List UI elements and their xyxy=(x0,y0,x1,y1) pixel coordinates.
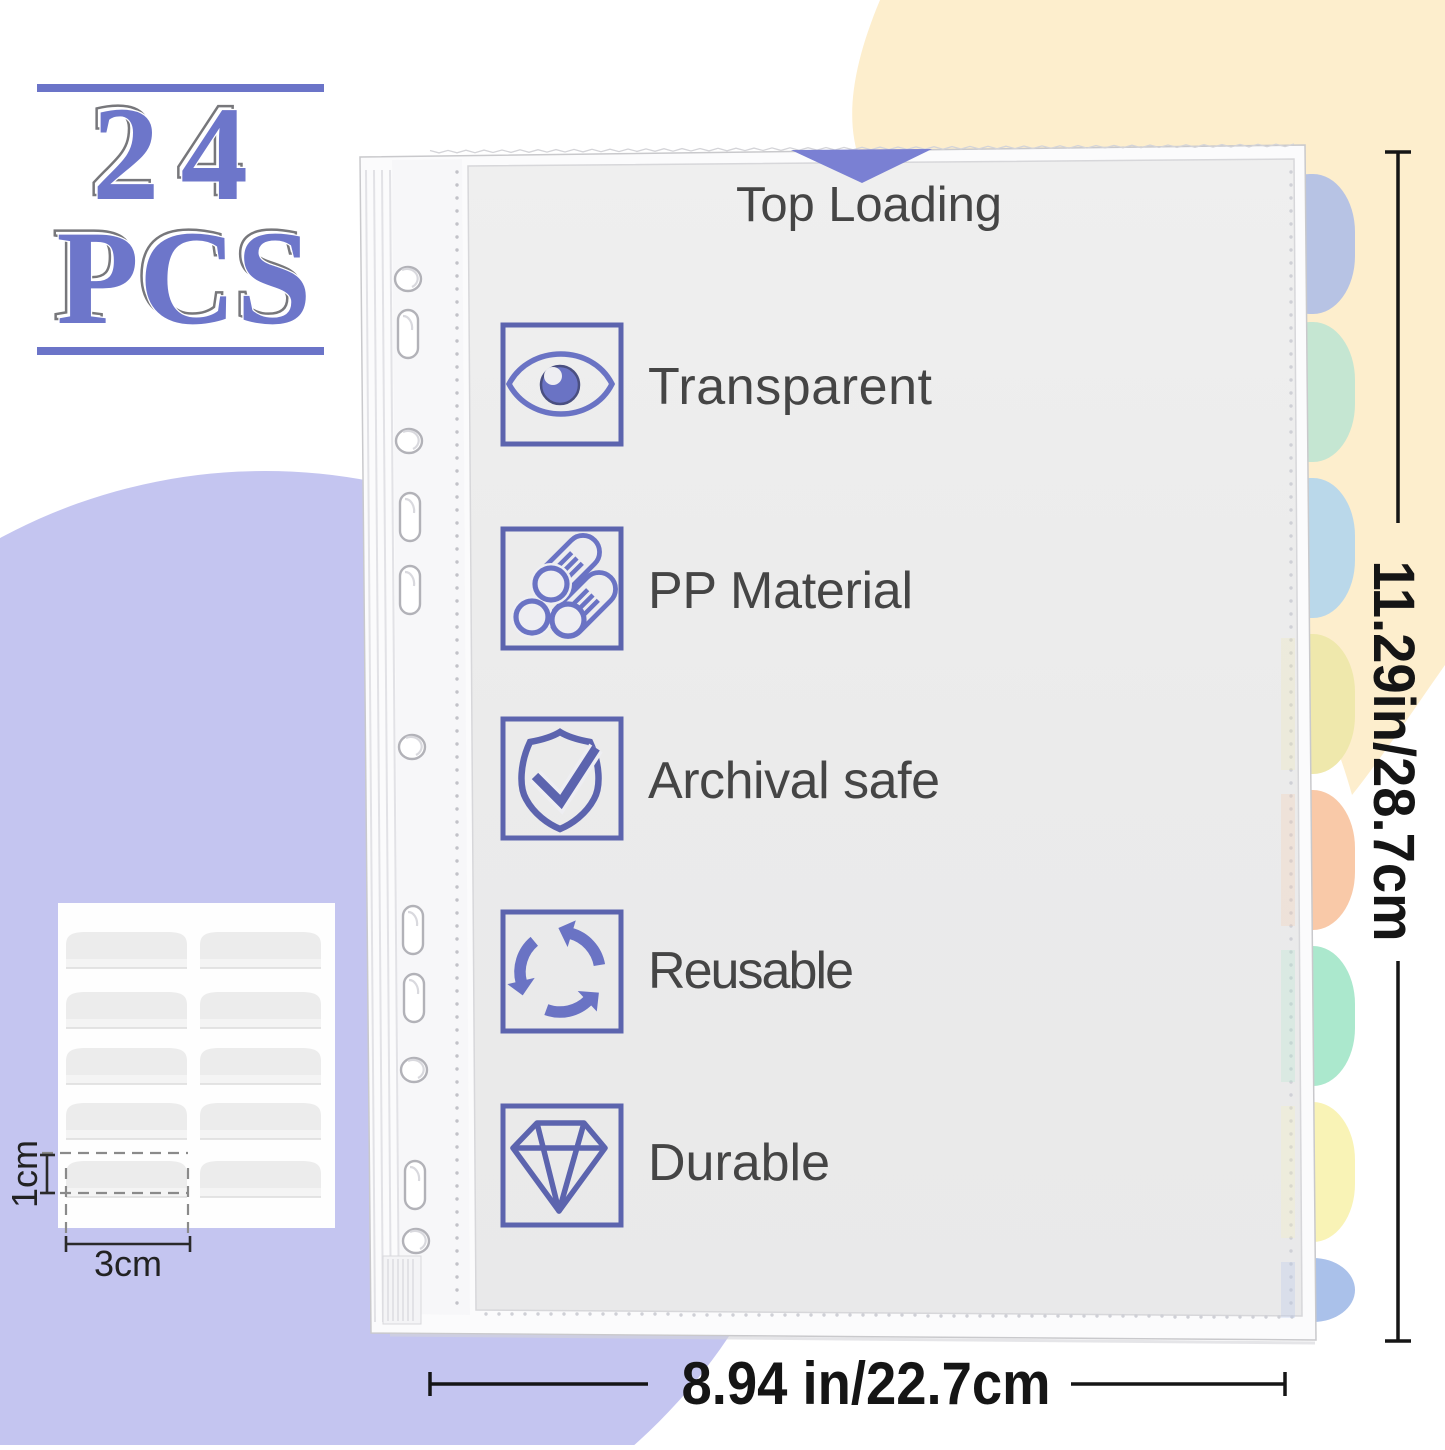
svg-text:Archival safe: Archival safe xyxy=(648,752,940,810)
svg-text:Top Loading: Top Loading xyxy=(736,178,1002,232)
svg-text:PP Material: PP Material xyxy=(648,562,913,620)
svg-text:Durable: Durable xyxy=(648,1134,830,1192)
svg-text:11.29in/28.7cm: 11.29in/28.7cm xyxy=(1361,561,1426,942)
svg-text:Transparent: Transparent xyxy=(648,358,933,416)
svg-text:8.94 in/22.7cm: 8.94 in/22.7cm xyxy=(682,1350,1051,1417)
svg-text:PCS: PCS xyxy=(56,204,311,353)
svg-text:3cm: 3cm xyxy=(94,1243,162,1284)
svg-text:1cm: 1cm xyxy=(4,1140,45,1208)
svg-text:Reusable: Reusable xyxy=(648,942,854,1000)
